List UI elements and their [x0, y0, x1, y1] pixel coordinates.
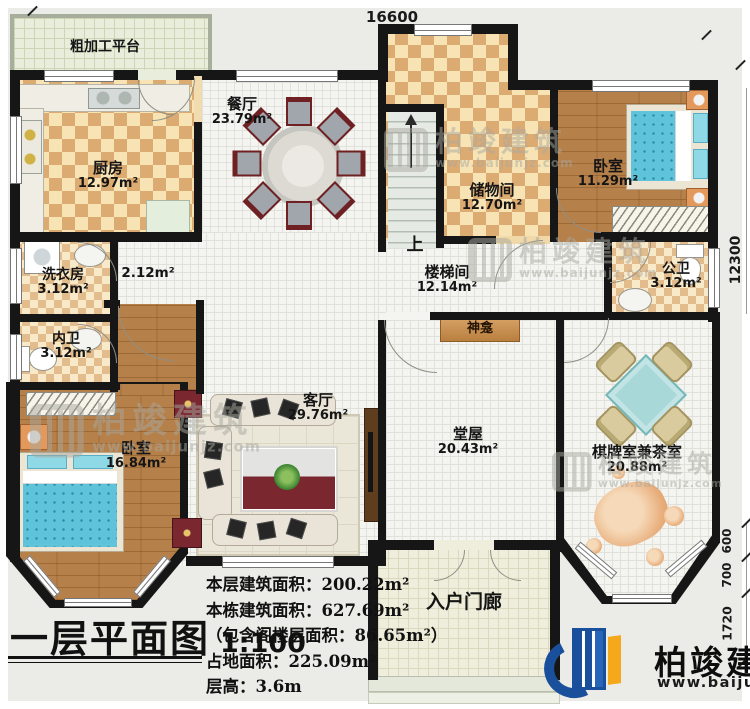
wall-segment [10, 232, 202, 242]
living-label: 客厅29.76m² [288, 392, 348, 423]
tv [368, 432, 373, 492]
wall-segment [436, 104, 444, 248]
chess-rug-dot [646, 548, 664, 566]
chess-tea-label: 棋牌室兼茶室20.88m² [592, 444, 682, 475]
wall-segment [196, 300, 204, 394]
dim-700: 700 [720, 552, 734, 598]
plan-title: 一层平面图 [10, 608, 210, 663]
kitchen-label: 厨房12.97m² [78, 160, 138, 191]
chess-rug-dot [664, 506, 684, 526]
kitchen-cabinet [146, 200, 190, 234]
window [236, 70, 338, 82]
title-underline [8, 656, 202, 663]
bedroom-ne-label: 卧室11.29m² [578, 158, 638, 189]
stair-arrow-line [410, 124, 412, 168]
window [708, 248, 720, 308]
door-opening [434, 540, 494, 550]
dining-chair [286, 97, 312, 126]
wall-segment [10, 314, 114, 322]
bedroom-sw-door-bridge [120, 384, 180, 396]
kitchen-sink [88, 88, 140, 109]
stat-story-height: 层高：3.6m [206, 674, 447, 700]
bed-ne-pillow [693, 149, 708, 179]
logo-building-orange [608, 635, 621, 685]
end-table [172, 518, 202, 548]
dining-label: 餐厅23.79m² [212, 96, 272, 127]
door-opening [558, 232, 594, 242]
wall-segment [594, 232, 718, 242]
wall-segment [378, 320, 386, 560]
window [10, 116, 22, 184]
door-opening [194, 76, 202, 122]
stairwell-label: 楼梯间12.14m² [417, 264, 477, 295]
storage-floor-upper [382, 32, 512, 88]
public-bath-label: 公卫3.12m² [650, 262, 701, 292]
wardrobe-sw [26, 392, 116, 416]
window [222, 556, 334, 568]
plant [274, 464, 300, 490]
wall-segment [550, 82, 558, 242]
stat-building-area: 本栋建筑面积：627.69m² [206, 598, 447, 624]
area-statistics: 本层建筑面积：200.22m² 本栋建筑面积：627.69m² （包含阁楼层面积… [206, 572, 447, 700]
nightstand [20, 424, 48, 450]
stat-floor-area: 本层建筑面积：200.22m² [206, 572, 447, 598]
shrine-label: 神龛 [467, 321, 493, 336]
dining-chair [286, 201, 312, 230]
window [64, 598, 132, 607]
platform-label: 粗加工平台 [70, 40, 140, 55]
bedroom-sw-label: 卧室16.84m² [106, 440, 166, 471]
main-hall-label: 堂屋20.43m² [438, 426, 498, 457]
bed-ne-sheet [675, 111, 691, 181]
sofa-pillow [204, 441, 223, 460]
stair-up-label: 上 [407, 236, 424, 255]
bed-sw-pillow [27, 455, 67, 469]
wall-segment [378, 74, 386, 252]
stair-arrow-head [405, 114, 417, 125]
company-logo-icon [544, 624, 644, 702]
bed-ne-pillow [693, 113, 708, 143]
hallway-area-label: 2.12m² [121, 266, 174, 281]
wall-segment [430, 312, 564, 320]
stat-attic-note: （包含阁楼层面积：86.65m²） [206, 623, 447, 649]
dim-top-width: 16600 [352, 8, 432, 26]
stat-footprint: 占地面积：225.09m² [206, 649, 447, 675]
sofa-pillow [250, 397, 270, 417]
bed-sw-sheet [23, 471, 117, 484]
wardrobe-ne [612, 206, 714, 234]
wall-segment [556, 312, 564, 552]
dining-chair [233, 151, 262, 177]
wall-segment [604, 312, 718, 320]
wall-segment [442, 236, 496, 244]
inner-bath-label: 内卫3.12m² [40, 332, 91, 362]
storage-label: 储物间12.70m² [462, 182, 522, 213]
window [10, 334, 22, 380]
laundry-label: 洗衣房3.12m² [37, 268, 88, 298]
window [44, 70, 114, 82]
window [612, 594, 672, 603]
wall-segment [550, 232, 558, 242]
floor-plan-sheet: 神龛 粗加工平台 厨房12.97m² 餐厅23.79m² 储物间12.70m² … [0, 0, 750, 709]
window [592, 80, 690, 92]
staircase [388, 110, 436, 248]
door-opening [386, 312, 430, 320]
toilet-public [676, 244, 704, 258]
dining-chair [337, 151, 366, 177]
sink-public [618, 288, 652, 312]
dim-right-height: 12300 [728, 224, 744, 296]
dimension-line [746, 88, 747, 314]
wall-segment [110, 232, 118, 392]
bed-ne [626, 104, 716, 190]
logo-building [572, 628, 606, 690]
company-url: www.baijunjz.com [657, 675, 750, 691]
sofa-pillow [257, 521, 277, 541]
window [10, 248, 22, 304]
end-table [174, 390, 202, 418]
